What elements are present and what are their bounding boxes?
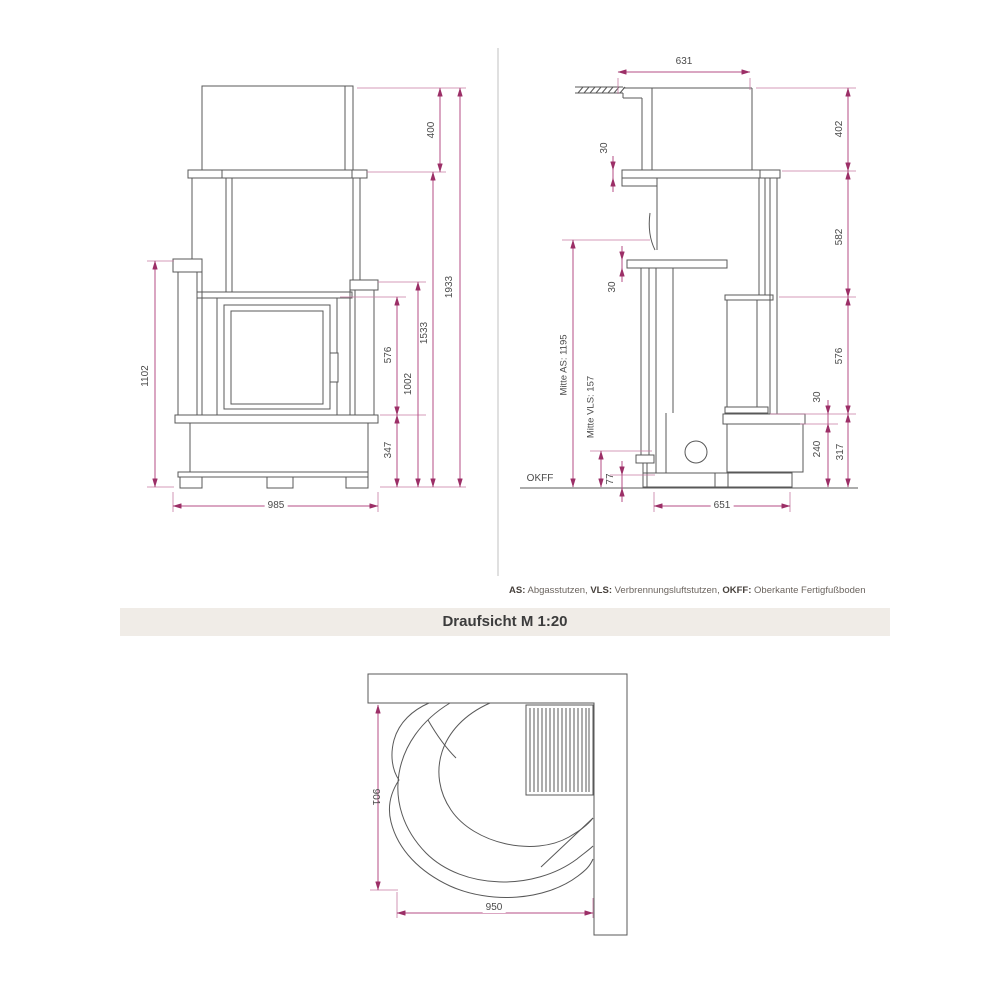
legend-as-label: AS: [509,585,525,596]
side-floor-label: OKFF [527,474,554,484]
side-dim-flue-center: Mitte AS: 1195 [559,334,569,395]
top-view-dimensions [370,705,593,918]
front-bench-slab [175,415,378,423]
legend-okff-label: OKFF: [722,585,751,596]
side-plinth [643,473,792,487]
side-mantel-shelf [622,170,780,178]
front-mantel-shelf [188,170,367,178]
side-dim-top-depth: 631 [676,57,693,67]
front-view-drawing [173,86,378,488]
side-bench-body [727,424,803,472]
side-flue-funnel [649,186,657,250]
top-view-drawing [368,674,627,935]
side-view-drawing [520,87,858,488]
side-dim-hood-depth: 402 [835,121,845,138]
legend-as-text: Abgasstutzen, [525,585,590,596]
side-dim-mantel-thickness: 30 [600,142,610,153]
side-glass-panel [727,300,757,407]
legend-vls-label: VLS: [590,585,612,596]
side-dim-air-center: Mitte VLS: 157 [586,376,596,438]
top-dim-width: 950 [483,903,506,913]
front-dim-total-height: 1933 [445,276,455,298]
front-hood-block [202,86,353,170]
side-dim-window-height: 576 [835,348,845,365]
front-view-dimensions [147,88,466,512]
side-small-shelf [627,260,727,268]
side-dim-bench-height: 317 [836,444,846,461]
side-dim-air-bottom: 77 [606,473,616,484]
front-left-shelf [173,259,202,272]
side-dim-upper-depth: 582 [835,229,845,246]
front-door-handle [330,353,338,382]
abbreviation-legend: AS: Abgasstutzen, VLS: Verbrennungslufts… [509,585,865,596]
front-upper-columns [192,178,360,292]
top-view-middle-curve [398,703,593,882]
side-dim-shelf-thickness: 30 [608,281,618,292]
front-firebox-glass [231,311,323,404]
technical-drawing-canvas [0,0,1000,1000]
top-view-wall [368,674,627,935]
front-dim-window-height: 576 [384,347,394,364]
front-dim-left-shelf-height: 1102 [141,365,151,387]
front-dim-right-shelf-height: 1002 [404,373,414,395]
section-title-banner: Draufsicht M 1:20 [120,608,890,636]
legend-vls-text: Verbrennungsluftstutzen, [612,585,722,596]
front-dim-hood-height: 400 [427,122,437,139]
technical-drawing-page: 400 1933 1533 1102 576 1002 347 985 631 … [0,0,1000,1000]
side-bench-slab [723,414,805,424]
side-dim-bench-body-height: 240 [813,441,823,458]
front-right-shelf [350,280,378,290]
front-firebox-frame [217,298,337,415]
side-dim-depth: 651 [711,501,734,511]
side-air-inlet-port [685,441,707,463]
side-chimney [623,88,752,170]
front-dim-base-height: 347 [384,442,394,459]
front-base-body [190,423,368,472]
front-dim-width: 985 [265,501,288,511]
legend-okff-text: Oberkante Fertigfußboden [751,585,865,596]
side-rear-wall-lines [759,178,777,414]
top-view-grille [526,705,593,795]
top-dim-depth: 901 [370,789,380,806]
side-dim-bench-top-thickness: 30 [813,391,823,402]
front-dim-upper-height: 1533 [420,322,430,344]
